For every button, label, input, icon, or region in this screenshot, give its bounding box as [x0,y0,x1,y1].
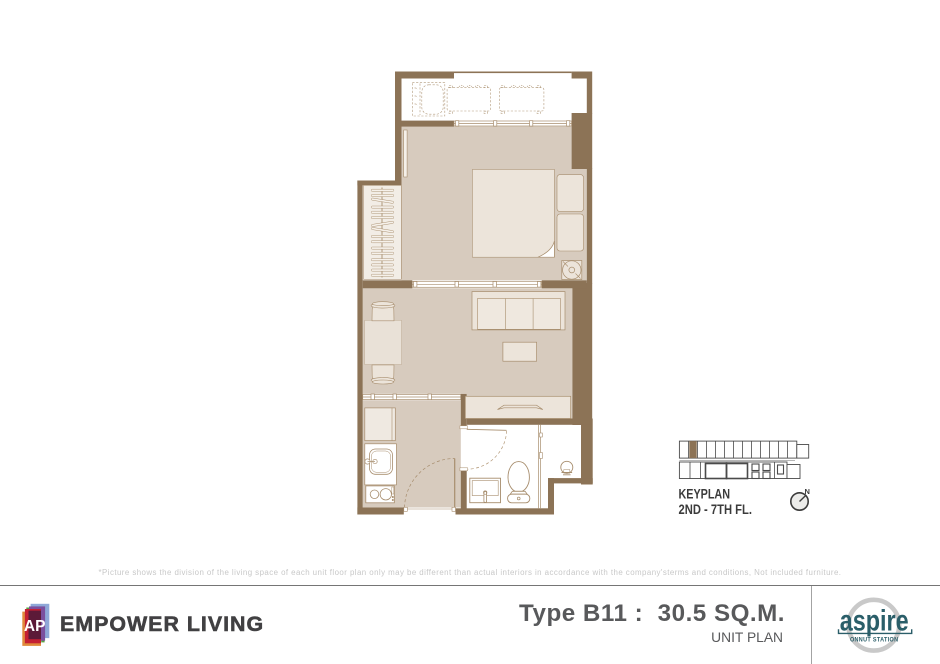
svg-text:aspire: aspire [840,604,909,637]
svg-text:ONNUT STATION: ONNUT STATION [850,637,899,644]
svg-text:KEYPLAN: KEYPLAN [679,487,731,503]
svg-text:AP: AP [24,618,46,635]
svg-text:2ND - 7TH FL.: 2ND - 7TH FL. [679,502,753,518]
svg-text:N: N [805,487,810,496]
